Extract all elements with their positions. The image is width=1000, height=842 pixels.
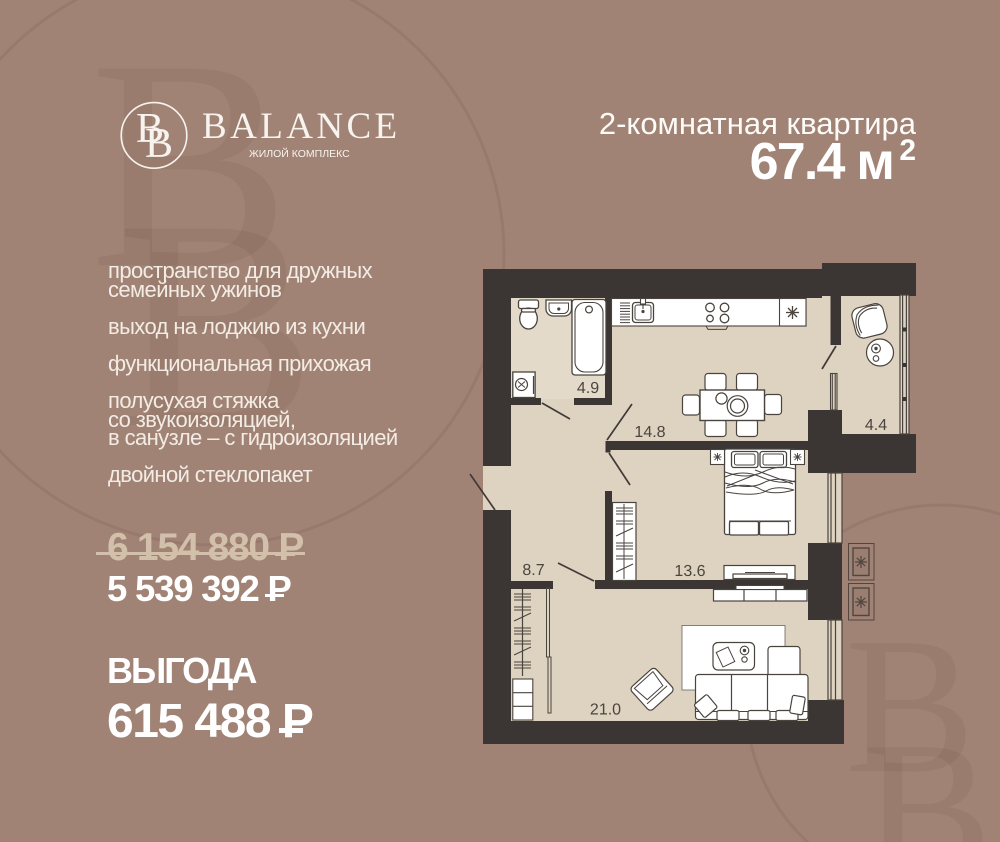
- svg-text:21.0: 21.0: [590, 702, 621, 719]
- svg-text:B: B: [145, 121, 173, 167]
- svg-text:13.6: 13.6: [674, 563, 705, 580]
- svg-text:14.8: 14.8: [634, 424, 665, 441]
- svg-text:4.9: 4.9: [577, 380, 599, 397]
- svg-text:8.7: 8.7: [522, 562, 544, 579]
- svg-text:4.4: 4.4: [865, 417, 887, 434]
